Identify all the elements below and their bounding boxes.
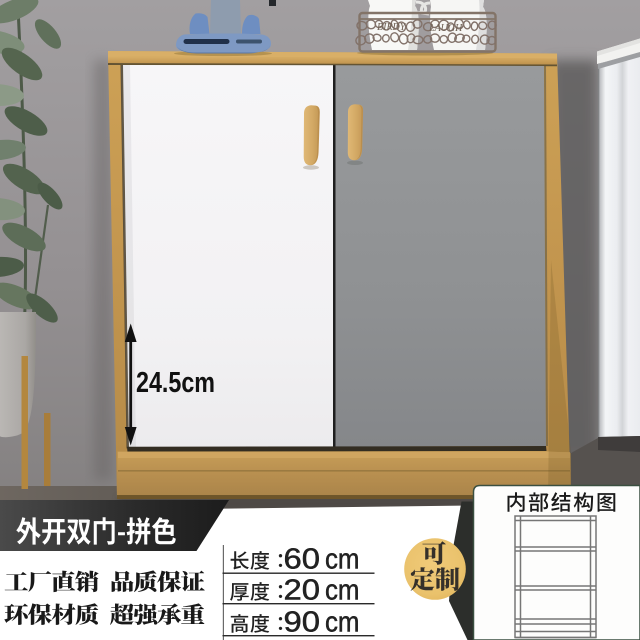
svg-text:BIRDY: BIRDY <box>377 22 407 33</box>
svg-text:90: 90 <box>284 607 321 639</box>
svg-text:20: 20 <box>284 575 321 607</box>
svg-text:60: 60 <box>284 544 321 576</box>
svg-text:cm: cm <box>325 544 360 576</box>
svg-text:cm: cm <box>325 607 360 639</box>
svg-text:24.5cm: 24.5cm <box>136 367 215 399</box>
svg-text:cm: cm <box>325 575 360 607</box>
svg-text:LAUGH: LAUGH <box>428 23 463 34</box>
